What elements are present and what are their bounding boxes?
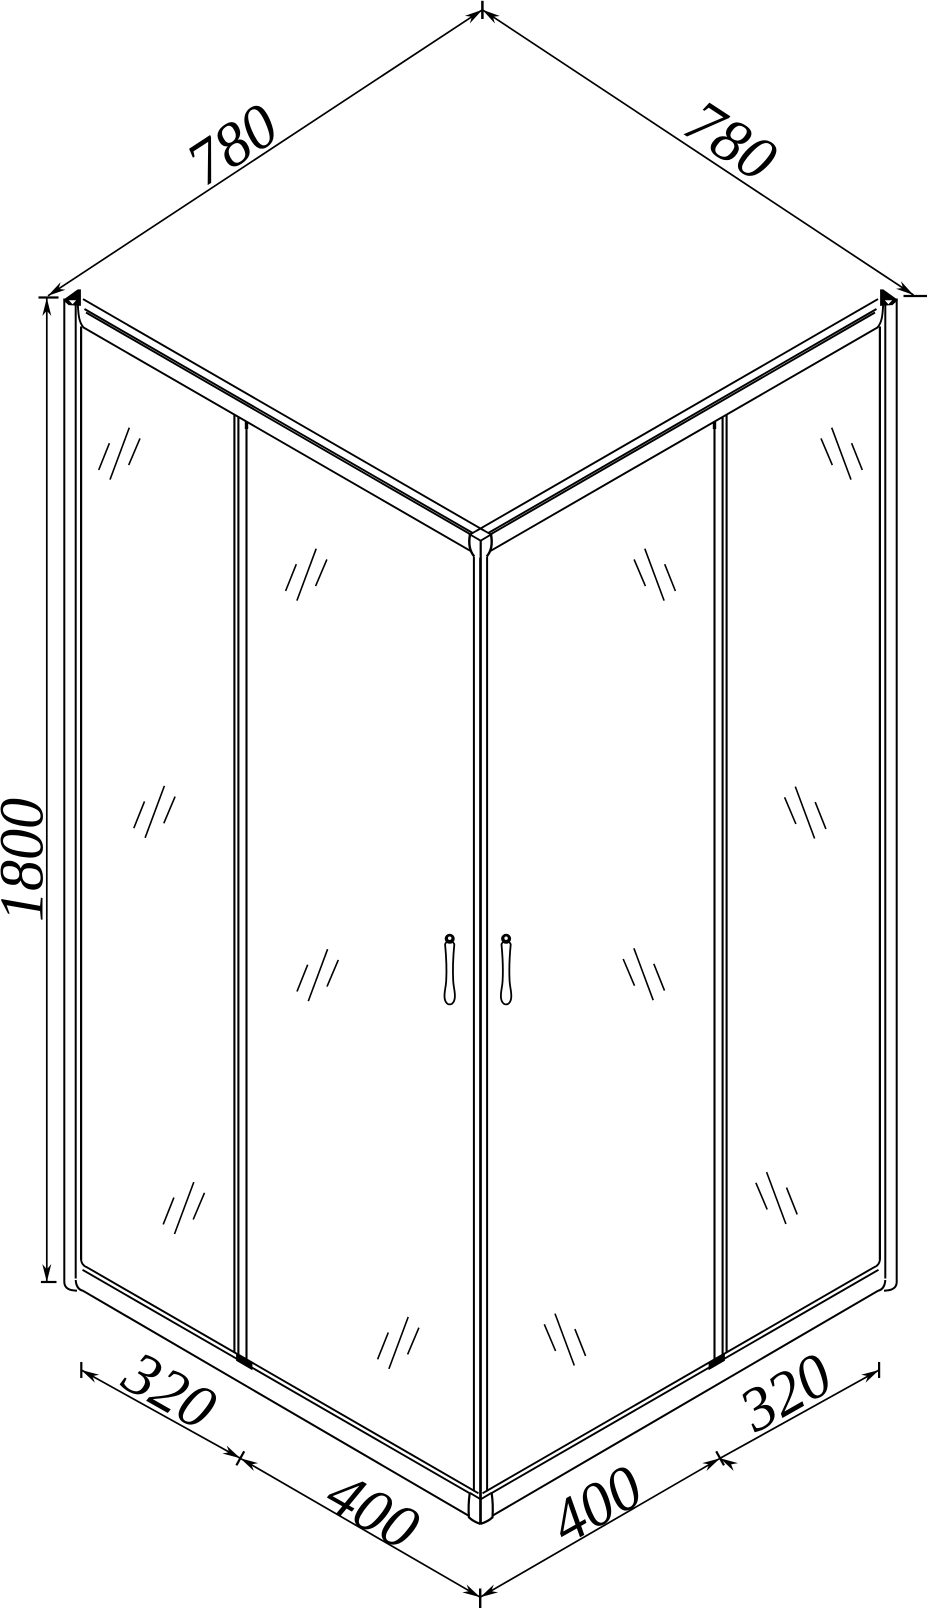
svg-text:1800: 1800 <box>0 798 57 922</box>
